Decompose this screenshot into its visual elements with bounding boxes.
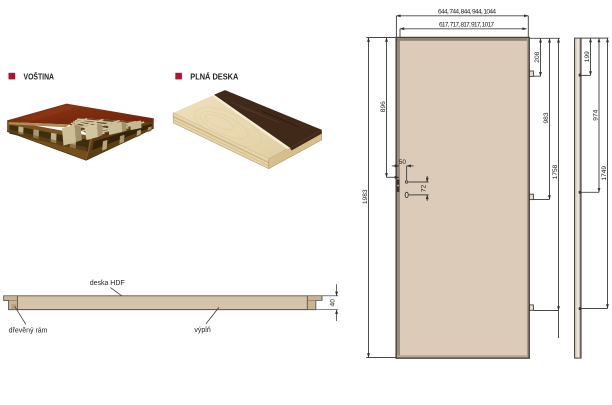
svg-text:50: 50 (399, 159, 407, 166)
svg-text:40: 40 (329, 299, 336, 307)
svg-text:644, 744, 844, 944, 1044: 644, 744, 844, 944, 1044 (438, 9, 496, 16)
svg-text:1749: 1749 (601, 166, 608, 181)
svg-text:deska HDF: deska HDF (90, 280, 125, 287)
svg-text:896: 896 (380, 101, 387, 112)
svg-text:974: 974 (592, 109, 599, 120)
svg-text:199: 199 (584, 51, 591, 62)
svg-text:VOŠTINA: VOŠTINA (24, 71, 55, 82)
svg-text:208: 208 (534, 51, 541, 62)
svg-text:617, 717, 817, 917, 1017: 617, 717, 817, 917, 1017 (439, 22, 494, 29)
svg-text:1983: 1983 (362, 189, 369, 204)
svg-text:výplň: výplň (194, 327, 210, 334)
svg-text:1758: 1758 (552, 164, 559, 179)
svg-text:dřevěný rám: dřevěný rám (9, 327, 48, 334)
svg-text:72: 72 (421, 184, 428, 192)
svg-text:PLNÁ DESKA: PLNÁ DESKA (190, 72, 238, 82)
svg-text:983: 983 (543, 112, 550, 123)
